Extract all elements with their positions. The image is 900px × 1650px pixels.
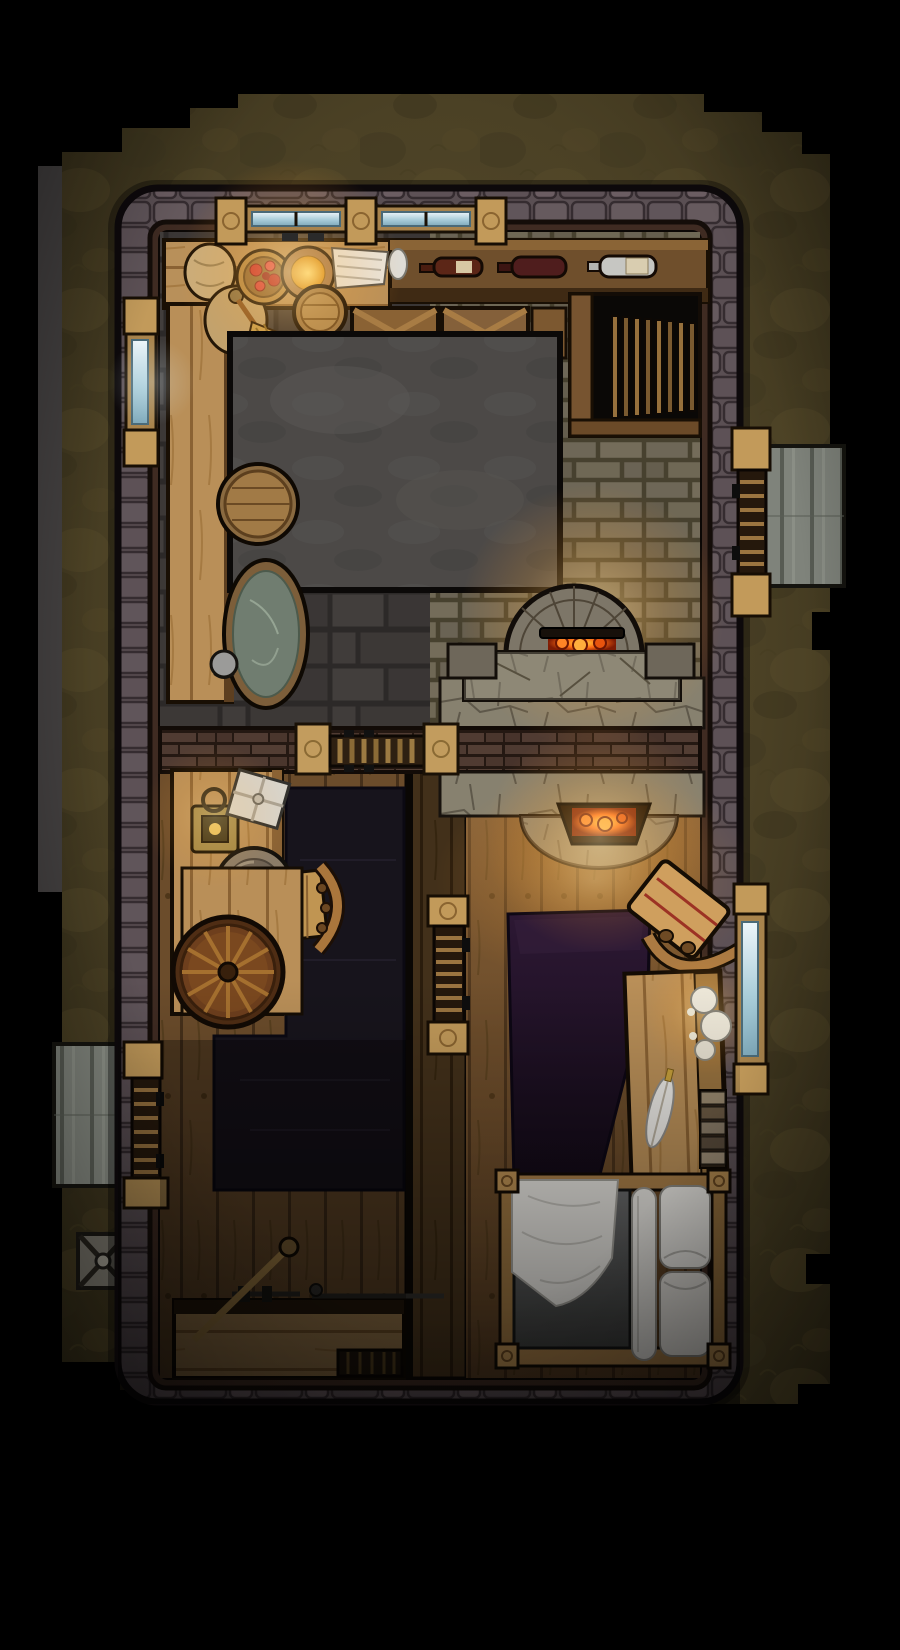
- battle-map-canvas: [0, 0, 900, 1650]
- battle-map-page: [0, 0, 900, 1650]
- vignette: [0, 0, 900, 1650]
